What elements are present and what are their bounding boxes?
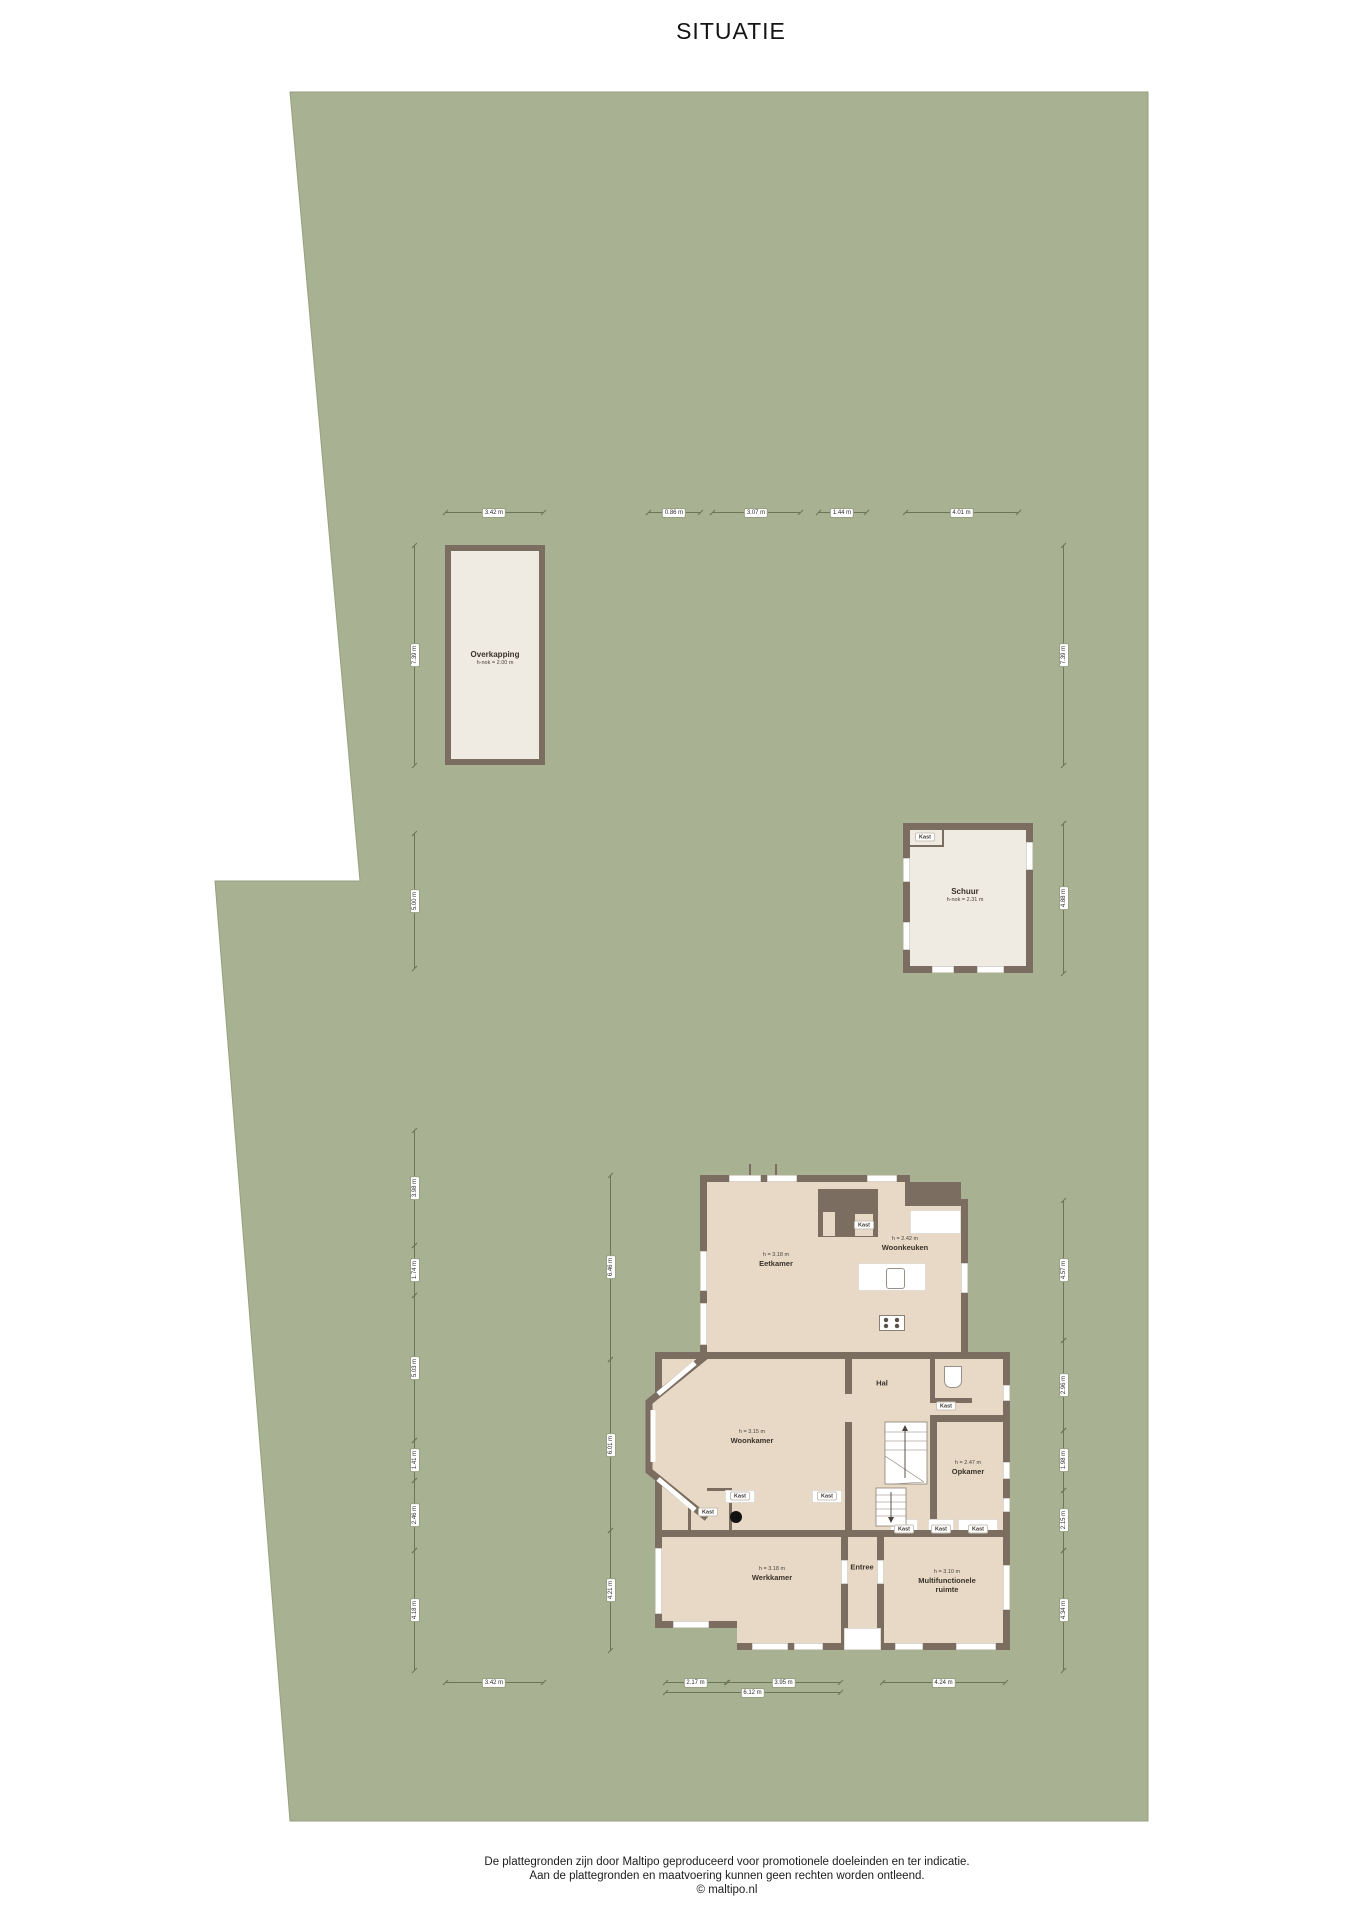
dimension-label: 1.74 m [410, 1258, 420, 1282]
dimension-label: 0.86 m [662, 508, 686, 518]
dimension-label: 6.46 m [606, 1255, 616, 1279]
room-name: Opkamer [952, 1467, 985, 1476]
closet-label: Kast [730, 1492, 750, 1501]
dimension-label: 2.15 m [1059, 1508, 1069, 1532]
footer-copyright: © maltipo.nl [697, 1883, 758, 1897]
dimension-label: 5.00 m [410, 888, 420, 912]
room-label: Hal [876, 1378, 888, 1387]
room-height-note: h = 2.42 m [882, 1236, 929, 1243]
house-details-layer [0, 0, 1358, 1920]
room-label: h = 3.15 mWoonkamer [731, 1429, 774, 1445]
room-name: Eetkamer [759, 1259, 793, 1268]
room-name: Werkkamer [752, 1573, 792, 1582]
dimension-label: 3.07 m [744, 508, 768, 518]
dimension-label: 3.98 m [410, 1175, 420, 1199]
closet-label: Kast [698, 1508, 718, 1517]
situatie-floor-plan: SITUATIE Overkapping h-nok = 2.00 m Kast… [0, 0, 1358, 1920]
room-height-note: h = 3.18 m [759, 1252, 793, 1259]
closet-label: Kast [817, 1492, 837, 1501]
dimension-label: 4.01 m [949, 508, 973, 518]
room-label: h = 3.10 mMultifunctionele ruimte [911, 1569, 983, 1595]
room-name: Woonkeuken [882, 1243, 929, 1252]
dimension-label: 6.12 m [740, 1688, 764, 1698]
dimension-label: 6.01 m [606, 1432, 616, 1456]
room-name: Multifunctionele ruimte [911, 1576, 983, 1595]
dimension-label: 5.03 m [410, 1355, 420, 1379]
dimension-label: 1.41 m [410, 1448, 420, 1472]
dimension-label: 1.44 m [830, 508, 854, 518]
room-label: h = 2.42 mWoonkeuken [882, 1236, 929, 1252]
room-name: Entree [850, 1562, 873, 1571]
room-height-note: h = 3.10 m [911, 1569, 983, 1576]
dimension-label: 2.96 m [1059, 1373, 1069, 1397]
dimension-label: 2.17 m [683, 1678, 707, 1688]
dimension-label: 1.98 m [1059, 1448, 1069, 1472]
closet-label: Kast [931, 1525, 951, 1534]
dimension-label: 7.39 m [1059, 643, 1069, 667]
room-height-note: h = 3.15 m [731, 1429, 774, 1436]
room-label: h = 3.18 mWerkkamer [752, 1566, 792, 1582]
dimension-label: 4.34 m [1059, 1598, 1069, 1622]
dimension-label: 4.88 m [1059, 886, 1069, 910]
dimension-label: 4.24 m [931, 1678, 955, 1688]
footer-disclaimer-line2: Aan de plattegronden en maatvoering kunn… [529, 1869, 924, 1883]
closet-label: Kast [968, 1525, 988, 1534]
dimension-label: 3.42 m [482, 508, 506, 518]
footer-disclaimer-line1: De plattegronden zijn door Maltipo gepro… [484, 1855, 969, 1869]
dimension-label: 3.95 m [771, 1678, 795, 1688]
room-label: Entree [850, 1562, 873, 1571]
room-height-note: h = 2.47 m [952, 1460, 985, 1467]
dimension-label: 4.57 m [1059, 1258, 1069, 1282]
staircase-secondary [876, 1488, 906, 1526]
dimension-label: 3.42 m [482, 1678, 506, 1688]
room-label: h = 3.18 mEetkamer [759, 1252, 793, 1268]
room-name: Woonkamer [731, 1436, 774, 1445]
closet-label: Kast [936, 1402, 956, 1411]
dimension-label: 2.46 m [410, 1503, 420, 1527]
room-label: h = 2.47 mOpkamer [952, 1460, 985, 1476]
staircase-main [885, 1422, 927, 1484]
room-height-note: h = 3.18 m [752, 1566, 792, 1573]
closet-label: Kast [854, 1221, 874, 1230]
dimension-label: 4.18 m [410, 1598, 420, 1622]
dimension-label: 4.21 m [606, 1578, 616, 1602]
closet-label: Kast [894, 1525, 914, 1534]
room-name: Hal [876, 1378, 888, 1387]
dimension-label: 7.39 m [410, 643, 420, 667]
